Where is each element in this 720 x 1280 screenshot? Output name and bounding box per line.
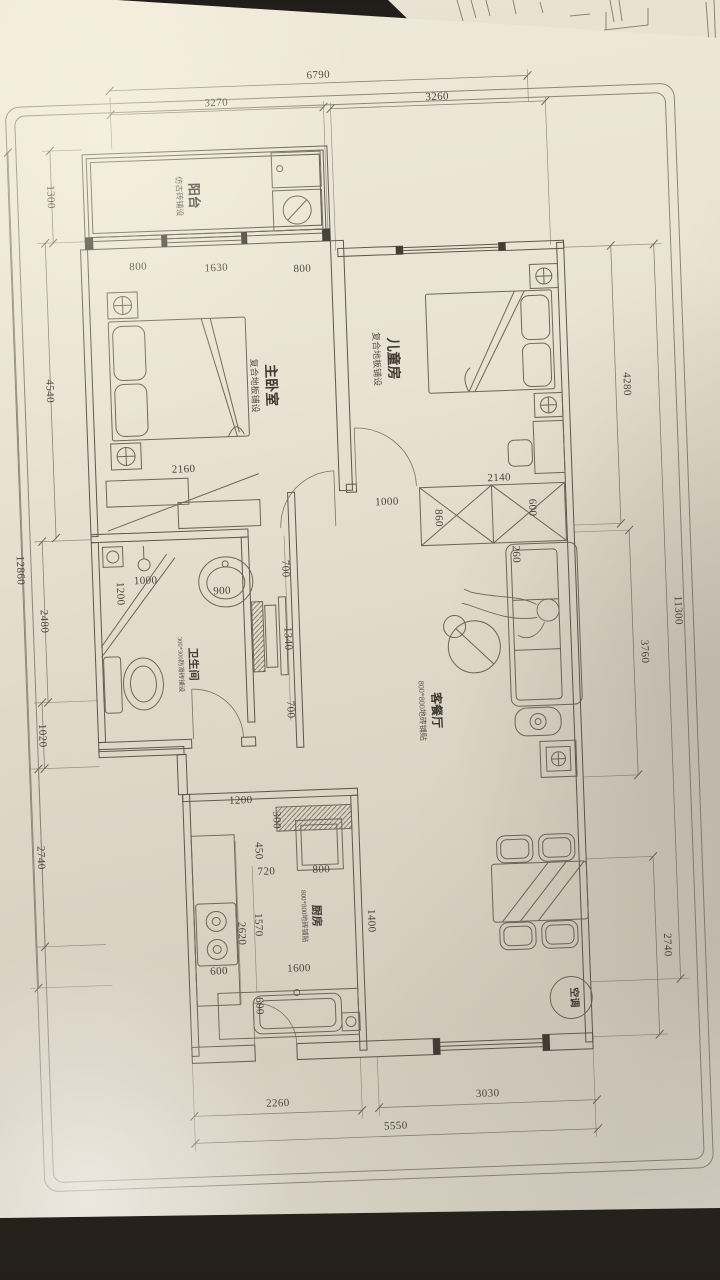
room-label-master-bedroom: 主卧室复合地板铺设 [249, 358, 281, 413]
stove [196, 903, 238, 966]
dim-interior-c860: 860 [432, 509, 445, 527]
dim-left-d1020: 1020 [36, 724, 49, 748]
dim-interior-h1000: 1000 [375, 495, 399, 508]
dim-bottom-kitchen: 2260 [266, 1097, 290, 1110]
room-name: 主卧室 [262, 364, 281, 407]
room-label-kids-room: 儿童房复合地板铺设 [371, 331, 403, 386]
room-finish: 复合地板铺设 [371, 332, 384, 386]
door-arcs [182, 426, 436, 1047]
dim-interior-k1600: 1600 [287, 962, 311, 975]
kids-nightstands [529, 264, 563, 418]
dining-chairs [496, 833, 578, 950]
balcony-outline [82, 146, 330, 242]
dim-interior-b1200: 1200 [114, 582, 127, 606]
master-bed [108, 317, 249, 441]
room-label-balcony: 阳台仿古砖铺设 [174, 176, 202, 217]
dim-interior-n700b: 700 [284, 701, 297, 719]
photo-background: 6790327032601300454024801020274012860428… [0, 0, 720, 1280]
dim-top-left: 3270 [204, 96, 228, 109]
room-finish: 复合地板铺设 [249, 358, 262, 412]
dim-interior-n700a: 700 [279, 560, 292, 578]
person-figure [461, 586, 560, 640]
toilet-bowl [123, 657, 165, 710]
dim-line-bottom-living [379, 1100, 597, 1108]
dim-interior-b900: 900 [213, 585, 231, 598]
dim-interior-k2620: 2620 [235, 922, 248, 946]
room-label-living-dining: 客餐厅800*800地砖铺贴 [417, 680, 446, 741]
extension-lines [0, 65, 694, 1157]
room-label-ac-unit: 空调 [568, 987, 582, 1007]
dim-right-d4280: 4280 [620, 372, 633, 396]
dim-interior-k300: 300 [270, 811, 283, 829]
dim-interior-k1200: 1200 [229, 794, 253, 807]
bathroom-sink [198, 556, 254, 608]
room-label-kitchen: 厨房800*800地砖铺贴 [299, 889, 325, 942]
dim-left-d2740: 2740 [34, 846, 47, 870]
dim-interior-b1000: 1000 [134, 574, 158, 587]
dim-left-d2480: 2480 [38, 610, 51, 634]
shower-head [138, 559, 150, 571]
floor-feature-square [540, 740, 577, 777]
kids-room-door-arc [354, 426, 416, 488]
wall-posts [85, 222, 550, 1066]
kids-desk [507, 420, 565, 474]
dim-left-balcony: 1300 [44, 185, 57, 209]
dim-bottom-overall: 5550 [384, 1120, 408, 1133]
dim-interior-n1340: 1340 [281, 627, 294, 651]
balcony-window [167, 236, 241, 243]
kids-bed [425, 290, 555, 394]
dim-interior-m2160: 2160 [172, 463, 196, 476]
dim-interior-k600b: 600 [253, 997, 266, 1015]
room-finish: 仿古砖铺设 [174, 176, 185, 216]
walls [77, 137, 593, 1066]
room-name: 客餐厅 [429, 691, 445, 729]
dim-interior-m1630: 1630 [204, 262, 228, 275]
side-table [515, 707, 562, 737]
kitchen-counter-left [191, 835, 240, 1006]
dim-line-right-d3760 [629, 530, 638, 775]
dim-interior-m800a: 800 [129, 261, 147, 274]
floor-plan-sheet: 6790327032601300454024801020274012860428… [0, 0, 720, 1280]
shower-corner [98, 554, 179, 658]
room-name: 卫生间 [186, 647, 201, 680]
room-name: 空调 [568, 987, 582, 1007]
wall-kitchen-top [183, 788, 358, 801]
wall-master-left [81, 250, 99, 537]
dim-bottom-living: 3030 [476, 1087, 500, 1100]
wall-master-right [330, 240, 352, 490]
room-finish: 800*800地砖铺贴 [299, 890, 310, 943]
dim-interior-k720: 720 [257, 865, 275, 878]
room-name: 儿童房 [384, 336, 403, 380]
dining-table [491, 861, 588, 922]
dim-interior-k600a: 600 [210, 965, 228, 978]
dim-interior-c600: 600 [526, 499, 539, 517]
room-name: 阳台 [186, 183, 202, 210]
dim-left-overall: 12860 [14, 555, 27, 585]
master-door-arc [279, 471, 336, 528]
dim-right-d3760: 3760 [638, 640, 651, 664]
dim-top-overall: 6790 [306, 69, 330, 82]
dim-interior-m800b: 800 [293, 263, 311, 276]
dim-interior-k450: 450 [252, 842, 265, 860]
room-finish: 300*300防滑砖铺设 [176, 637, 187, 693]
dim-interior-k1400: 1400 [365, 909, 378, 933]
dim-interior-k800: 800 [312, 863, 330, 876]
dim-left-bedroom: 4540 [43, 379, 56, 403]
wardrobe [106, 474, 261, 532]
plan-rotation-wrapper: 6790327032601300454024801020274012860428… [0, 0, 720, 1280]
washing-machine [271, 151, 323, 231]
dim-line-right-d2740 [653, 856, 660, 1034]
room-finish: 800*800地砖铺贴 [417, 681, 429, 741]
wall-bathroom-top [91, 529, 248, 543]
kitchen-sink [218, 987, 361, 1039]
bathroom-fixtures [97, 542, 257, 714]
dim-line-bottom-kitchen [194, 1110, 362, 1116]
bathroom-door-arc [192, 687, 244, 739]
dim-interior-k1570: 1570 [252, 913, 265, 937]
coffee-table [443, 614, 501, 674]
dim-interior-c260: 260 [510, 545, 523, 563]
room-name: 厨房 [310, 905, 325, 927]
dim-right-d2740: 2740 [661, 933, 674, 957]
dim-interior-c2140: 2140 [487, 471, 511, 484]
dim-line-right-d4280 [611, 246, 621, 524]
kitchen-counter-top [276, 804, 352, 831]
dim-top-right: 3260 [425, 90, 449, 103]
floor-plan-drawing: 6790327032601300454024801020274012860428… [0, 0, 720, 1280]
dim-right-overall: 11300 [672, 596, 685, 626]
toilet-tank [103, 657, 122, 714]
room-label-bathroom: 卫生间300*300防滑砖铺设 [176, 636, 202, 693]
living-room-window [440, 1039, 543, 1051]
kids-room-window [403, 244, 499, 254]
